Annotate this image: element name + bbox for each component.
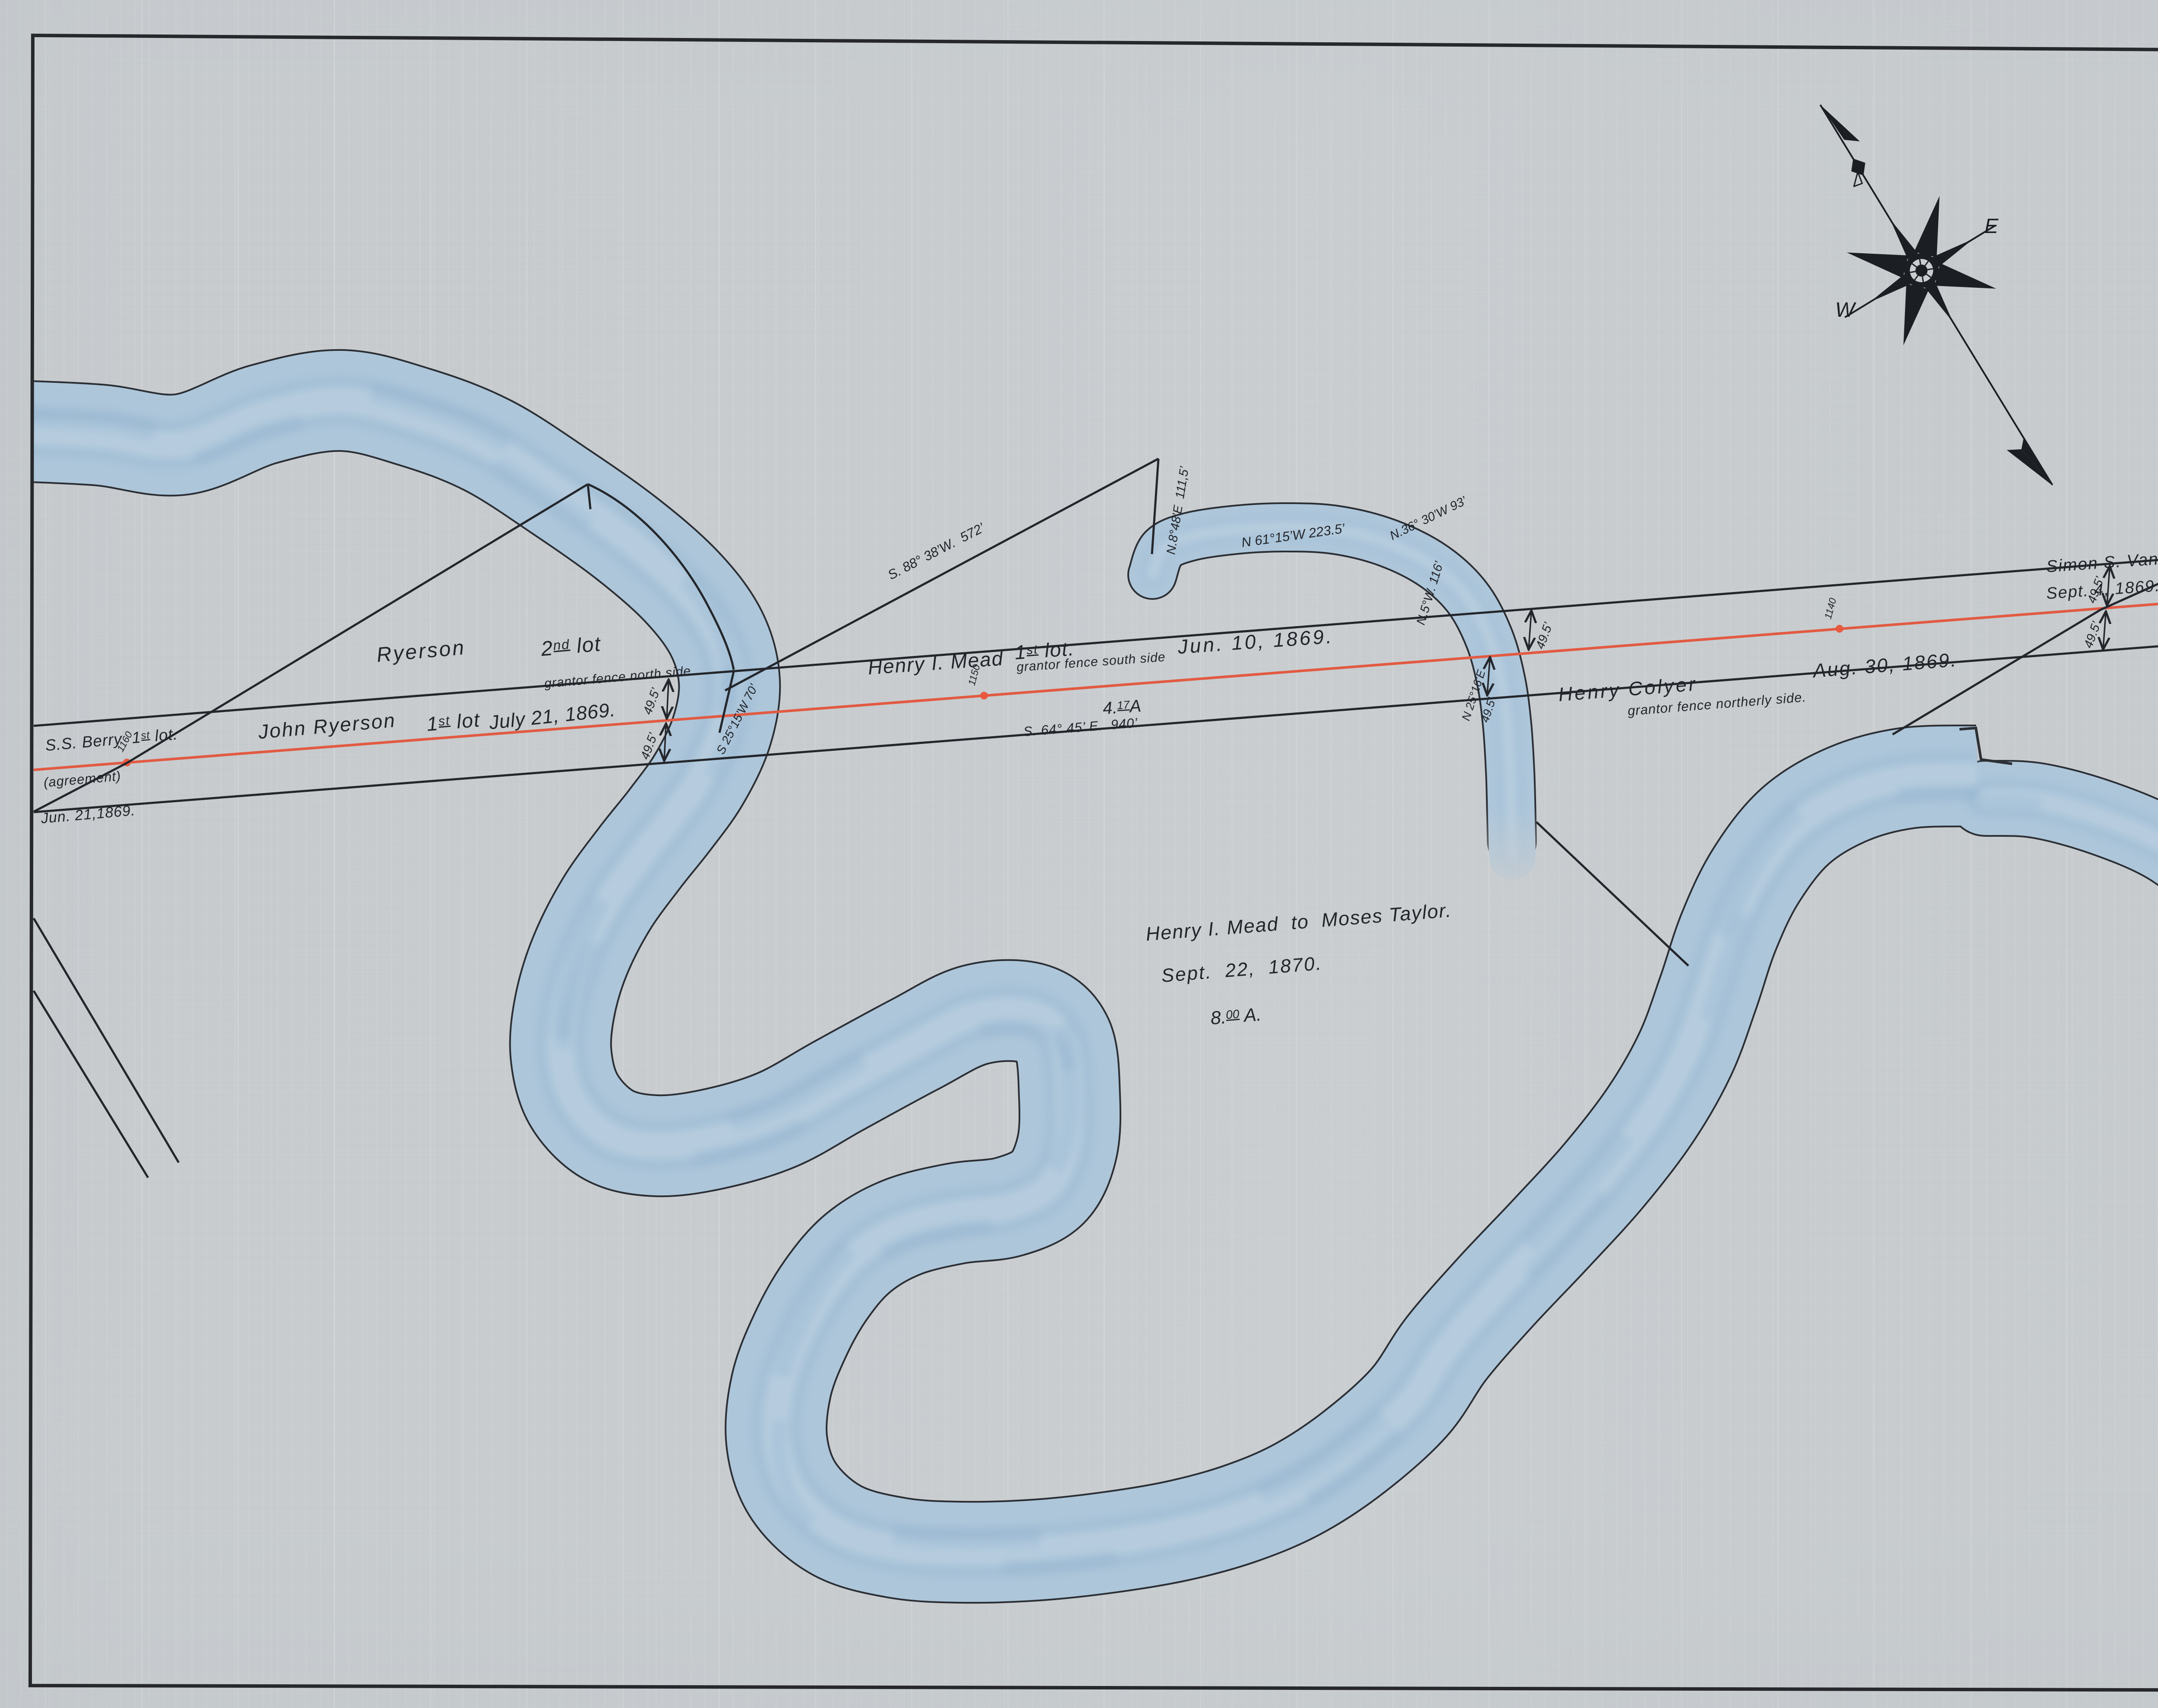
svg-text:W: W (1835, 299, 1857, 321)
svg-text:E: E (1984, 215, 1999, 238)
svg-text:1st lot: 1st lot (426, 708, 481, 735)
